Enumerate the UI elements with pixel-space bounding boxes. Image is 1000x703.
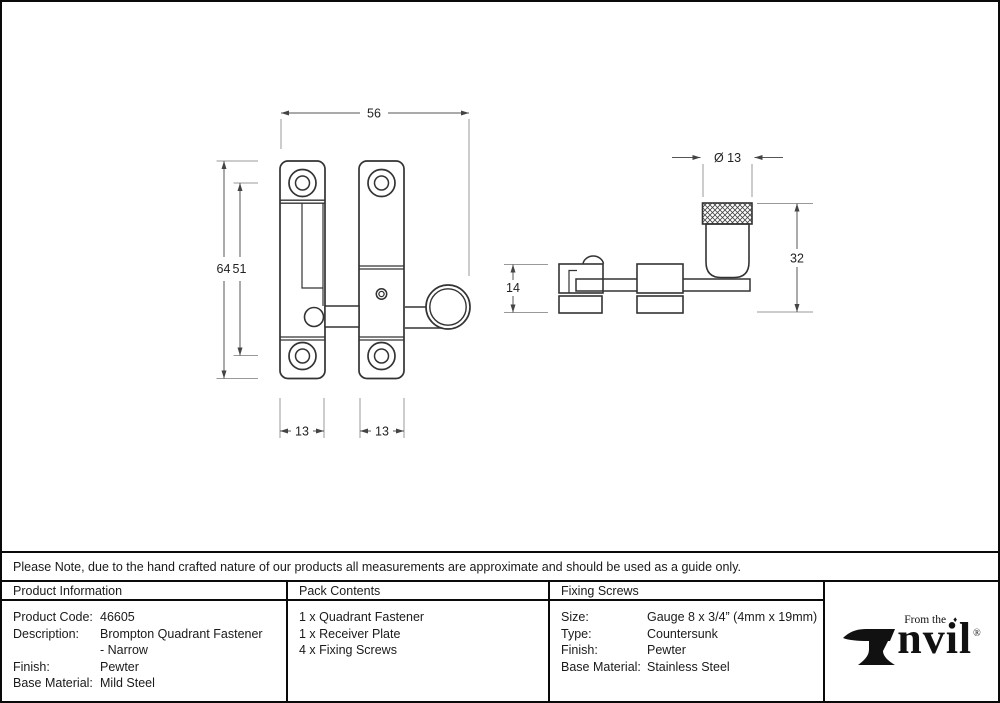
list-item: 1 x Quadrant Fastener: [299, 609, 548, 626]
side-view: Ø 13 32 14: [504, 151, 813, 313]
table-row: Size: Gauge 8 x 3/4” (4mm x 19mm): [561, 609, 823, 626]
info-table: Product Information Product Code: 46605 …: [2, 582, 998, 701]
dim-receiver-height: 14: [506, 281, 520, 295]
table-row: Type: Countersunk: [561, 626, 823, 643]
latch-bar: [325, 306, 359, 327]
front-view: 56 64 51 13 13: [213, 105, 470, 439]
product-information-column: Product Information Product Code: 46605 …: [2, 582, 286, 701]
knob-knurl-band: [703, 203, 753, 224]
anvil-logo: From the ♦ nvil®: [842, 614, 981, 670]
dim-knob-height: 32: [790, 252, 804, 266]
fixing-screws-header: Fixing Screws: [550, 582, 823, 601]
table-row: Description: Brompton Quadrant Fastener: [13, 626, 286, 643]
brand-cell: From the ♦ nvil®: [823, 582, 998, 701]
product-information-header: Product Information: [2, 582, 286, 601]
dim-overall-width: 56: [367, 107, 381, 121]
dim-right-plate-width: 13: [375, 425, 389, 439]
dim-knob-diameter: Ø 13: [714, 151, 741, 165]
knob-front-outer: [426, 285, 470, 329]
note-bar: Please Note, due to the hand crafted nat…: [2, 551, 998, 582]
pack-contents-header: Pack Contents: [288, 582, 548, 601]
logo-word: nvil®: [897, 620, 981, 670]
knob-side-body: [706, 224, 749, 278]
table-row: Product Code: 46605: [13, 609, 286, 626]
table-row: Finish: Pewter: [561, 642, 823, 659]
technical-drawing: 56 64 51 13 13: [2, 2, 998, 551]
list-item: 1 x Receiver Plate: [299, 626, 548, 643]
dim-overall-height: 64: [217, 262, 231, 276]
table-row: Base Material: Stainless Steel: [561, 659, 823, 676]
logo-text: From the ♦ nvil®: [897, 614, 981, 670]
pivot-circle: [305, 308, 324, 327]
dim-hole-spacing: 51: [233, 262, 247, 276]
pack-contents-column: Pack Contents 1 x Quadrant Fastener 1 x …: [286, 582, 548, 701]
dim-left-plate-width: 13: [295, 425, 309, 439]
registered-mark: ®: [973, 628, 982, 639]
fixing-screws-column: Fixing Screws Size: Gauge 8 x 3/4” (4mm …: [548, 582, 823, 701]
spec-sheet: 56 64 51 13 13: [0, 0, 1000, 703]
table-row: - Narrow: [13, 642, 286, 659]
list-item: 4 x Fixing Screws: [299, 642, 548, 659]
anvil-icon: [842, 627, 896, 667]
note-text: Please Note, due to the hand crafted nat…: [13, 560, 741, 574]
front-dimensions: [217, 119, 470, 438]
table-row: Base Material: Mild Steel: [13, 675, 286, 692]
table-row: Finish: Pewter: [13, 659, 286, 676]
